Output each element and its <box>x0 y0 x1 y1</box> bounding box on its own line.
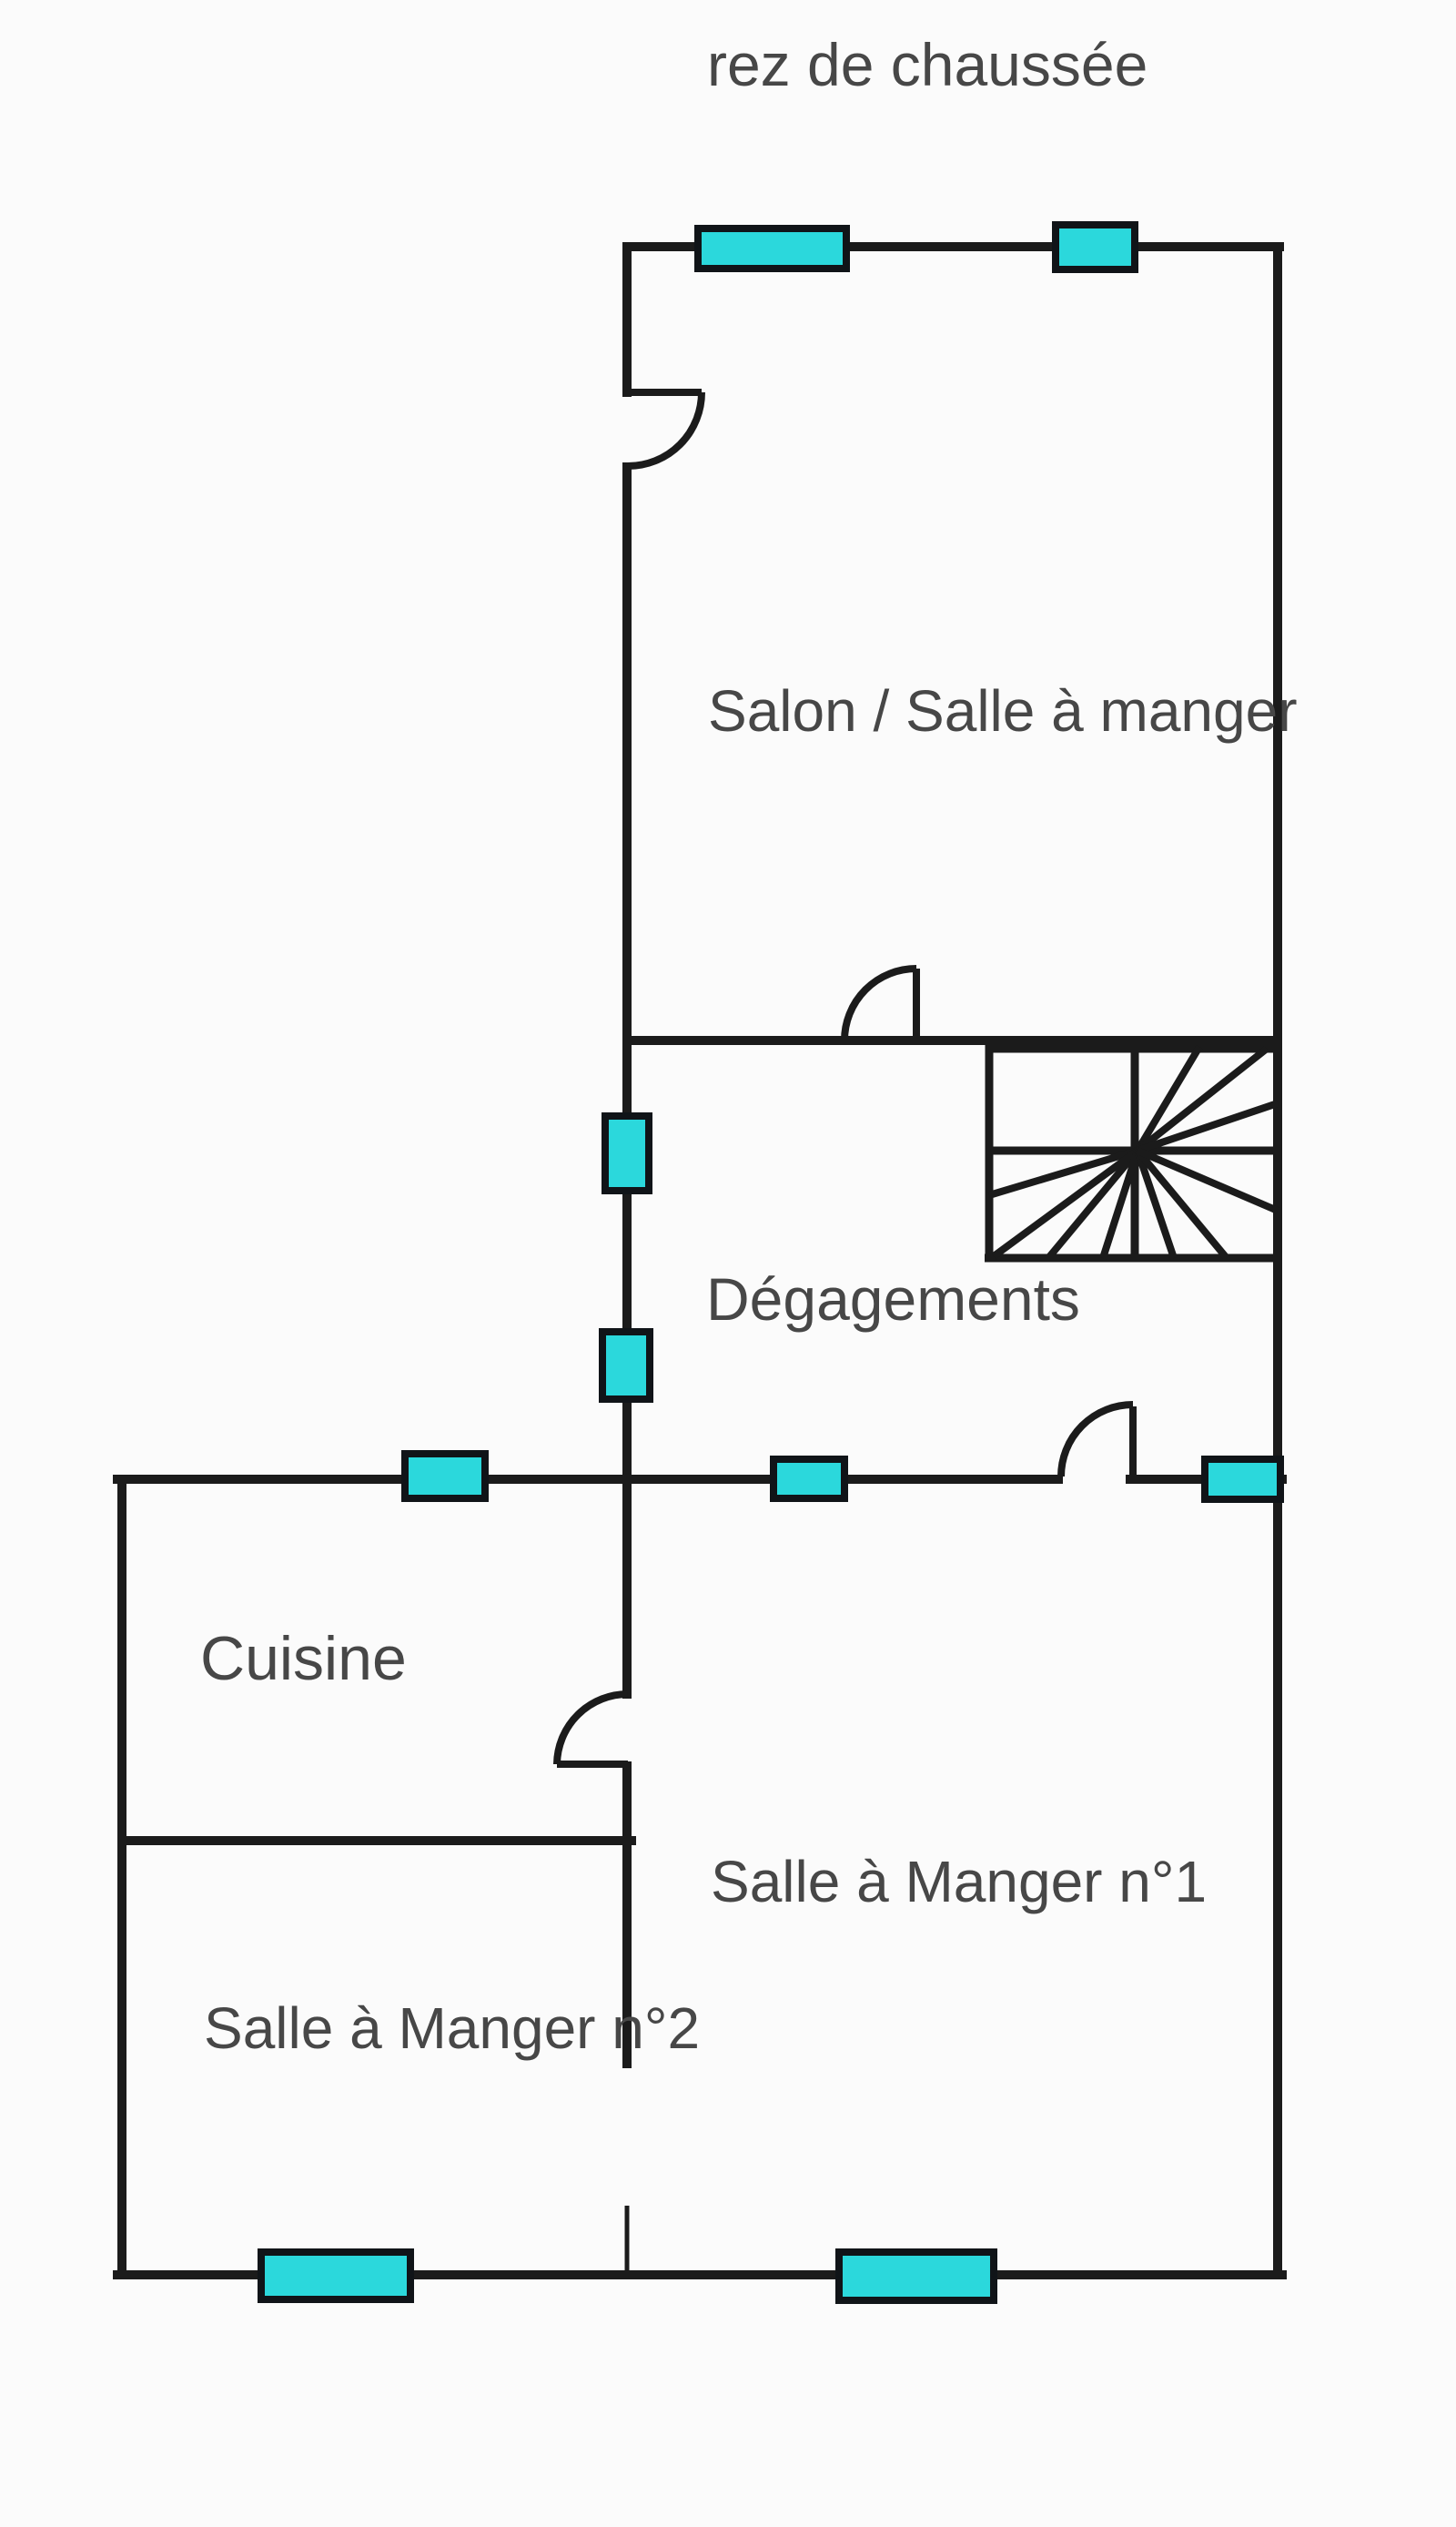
svg-text:Cuisine: Cuisine <box>200 1624 407 1693</box>
svg-text:Salle à Manger n°2: Salle à Manger n°2 <box>204 1995 700 2061</box>
svg-text:Dégagements: Dégagements <box>706 1265 1080 1333</box>
svg-text:rez de chaussée: rez de chaussée <box>707 31 1148 98</box>
svg-text:Salle à Manger n°1: Salle à Manger n°1 <box>711 1849 1207 1914</box>
svg-text:Salon / Salle à manger: Salon / Salle à manger <box>708 678 1298 744</box>
